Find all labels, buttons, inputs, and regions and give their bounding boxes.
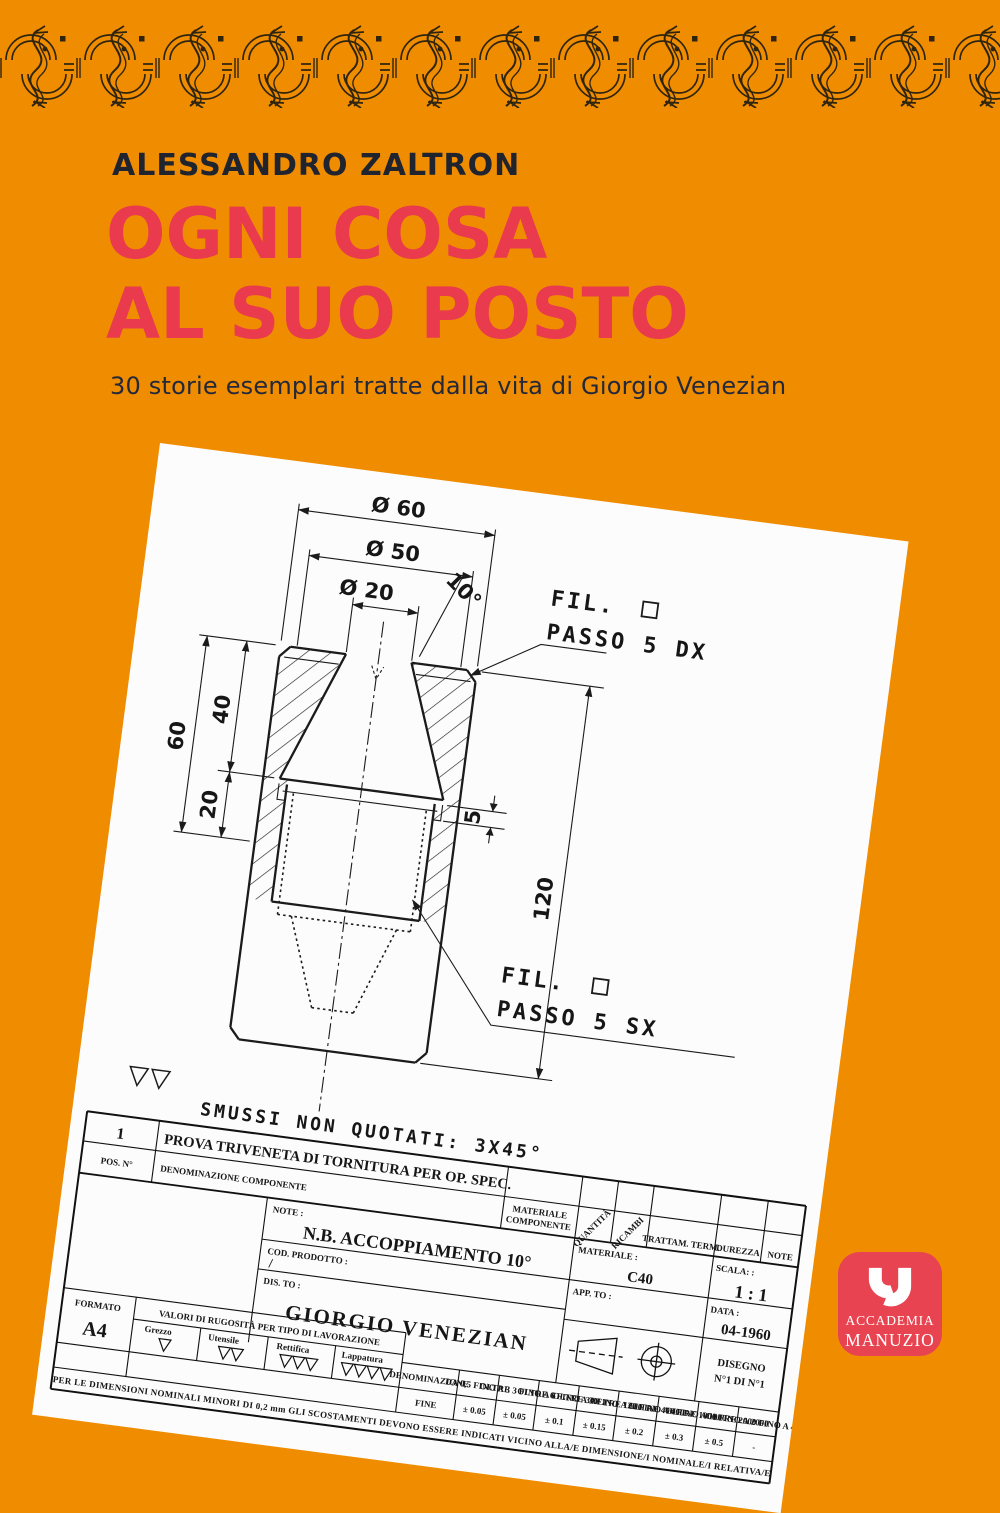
tol-value-3: ± 0.15 [582,1420,607,1433]
formato-value: A4 [81,1318,108,1343]
tol-value-6: ± 0.5 [704,1436,724,1448]
tol-value-5: ± 0.3 [664,1430,684,1442]
rugosita-label-lappatura: Lappatura [341,1350,384,1365]
dolphin-anchor-ornament-band [0,24,1000,108]
tol-value-2: ± 0.1 [545,1415,565,1427]
dim-20: 20 [195,788,223,820]
tol-value-1: ± 0.05 [502,1409,527,1422]
tol-row-label: FINE [415,1398,438,1411]
dim-40: 40 [208,693,236,725]
materiale-label: MATERIALE : [578,1245,639,1263]
thread-start-mark [370,666,384,680]
dim-d20: Ø 20 [338,575,395,606]
tol-head-7: OLTRE 2000 FINO A 4000 [705,1411,810,1435]
dimline-20 [221,772,230,837]
appto-label: APP. TO : [572,1286,612,1301]
materiale-value: C40 [626,1269,654,1288]
book-subtitle: 30 storie esemplari tratte dalla vita di… [110,372,786,400]
leader-sx [398,900,750,1057]
dim-d60: Ø 60 [370,492,427,523]
technical-drawing: Ø 60 Ø 50 Ø 20 10° 40 20 60 5 120 FIL. P [32,443,908,1513]
header-pos: POS. N° [100,1155,134,1169]
dimline-5 [489,796,495,844]
book-cover: { "cover": { "author": "ALESSANDRO ZALTR… [0,0,1000,1419]
technical-drawing-sheet: Ø 60 Ø 50 Ø 20 10° 40 20 60 5 120 FIL. P [32,443,908,1513]
tol-value-4: ± 0.2 [624,1425,644,1437]
thread-callout-sx: FIL. PASSO 5 SX [398,900,750,1057]
double-quote-mark-icon [861,1261,919,1311]
dis-to-value: GIORGIO VENEZIAN [284,1300,530,1356]
surface-finish-marks [128,1066,170,1089]
hidden-bore-lines [266,793,426,1019]
tol-value-0: ± 0.05 [462,1404,487,1417]
logo-text-accademia: ACCADEMIA [846,1313,935,1329]
square-symbol-dx [641,601,658,618]
tol-value-7: - [752,1442,756,1452]
header-note: NOTE [767,1249,794,1262]
rugosita-label-grezzo: Grezzo [144,1324,173,1338]
disegno-label: DISEGNO [717,1358,766,1375]
note-label: NOTE : [272,1204,304,1218]
title-block: 1 PROVA TRIVENETA DI TORNITURA PER OP. S… [51,1111,838,1487]
dim-5: 5 [460,808,486,826]
dim-angle: 10° [441,568,486,613]
accademia-manuzio-logo: ACCADEMIA MANUZIO [838,1252,942,1356]
pos-value: 1 [115,1125,125,1143]
header-trattam: TRATTAM. TERM. [642,1233,721,1253]
rugosita-label-rettifica: Rettifica [276,1341,310,1355]
part-section-view [221,609,482,1125]
passo-dx-label: PASSO 5 DX [545,620,709,666]
dim-d50: Ø 50 [364,536,421,567]
rugosita-label-utensile: Utensile [208,1332,240,1346]
dim-120: 120 [529,876,559,923]
scala-value: 1 : 1 [733,1281,768,1305]
square-symbol-sx [592,978,609,995]
title-line-2: AL SUO POSTO [106,273,689,355]
dimline-d20 [353,605,418,614]
projection-symbol-icon [567,1331,678,1383]
dis-to-label: DIS. TO : [263,1276,301,1291]
bore-shoulder-inner [283,791,438,811]
cod-prodotto-value: / [267,1255,274,1271]
centerline [319,622,383,1112]
formato-label: FORMATO [74,1297,121,1313]
header-durezza: DUREZZA [716,1243,761,1259]
data-label: DATA : [710,1304,740,1318]
fil-sx-label: FIL. [500,963,568,996]
title-line-1: OGNI COSA [106,193,547,275]
logo-text-manuzio: MANUZIO [845,1330,935,1351]
tolerance-bottom-note: PER LE DIMENSIONI NOMINALI MINORI DI 0,2… [52,1374,771,1478]
scala-label: SCALA: : [715,1263,755,1278]
dim-60: 60 [163,720,191,752]
book-title: OGNI COSAAL SUO POSTO [106,194,689,354]
author-name: ALESSANDRO ZALTRON [112,148,520,183]
fil-dx-label: FIL. [549,586,617,619]
disegno-value: N°1 DI N°1 [713,1373,765,1391]
groove-walls [272,784,435,920]
